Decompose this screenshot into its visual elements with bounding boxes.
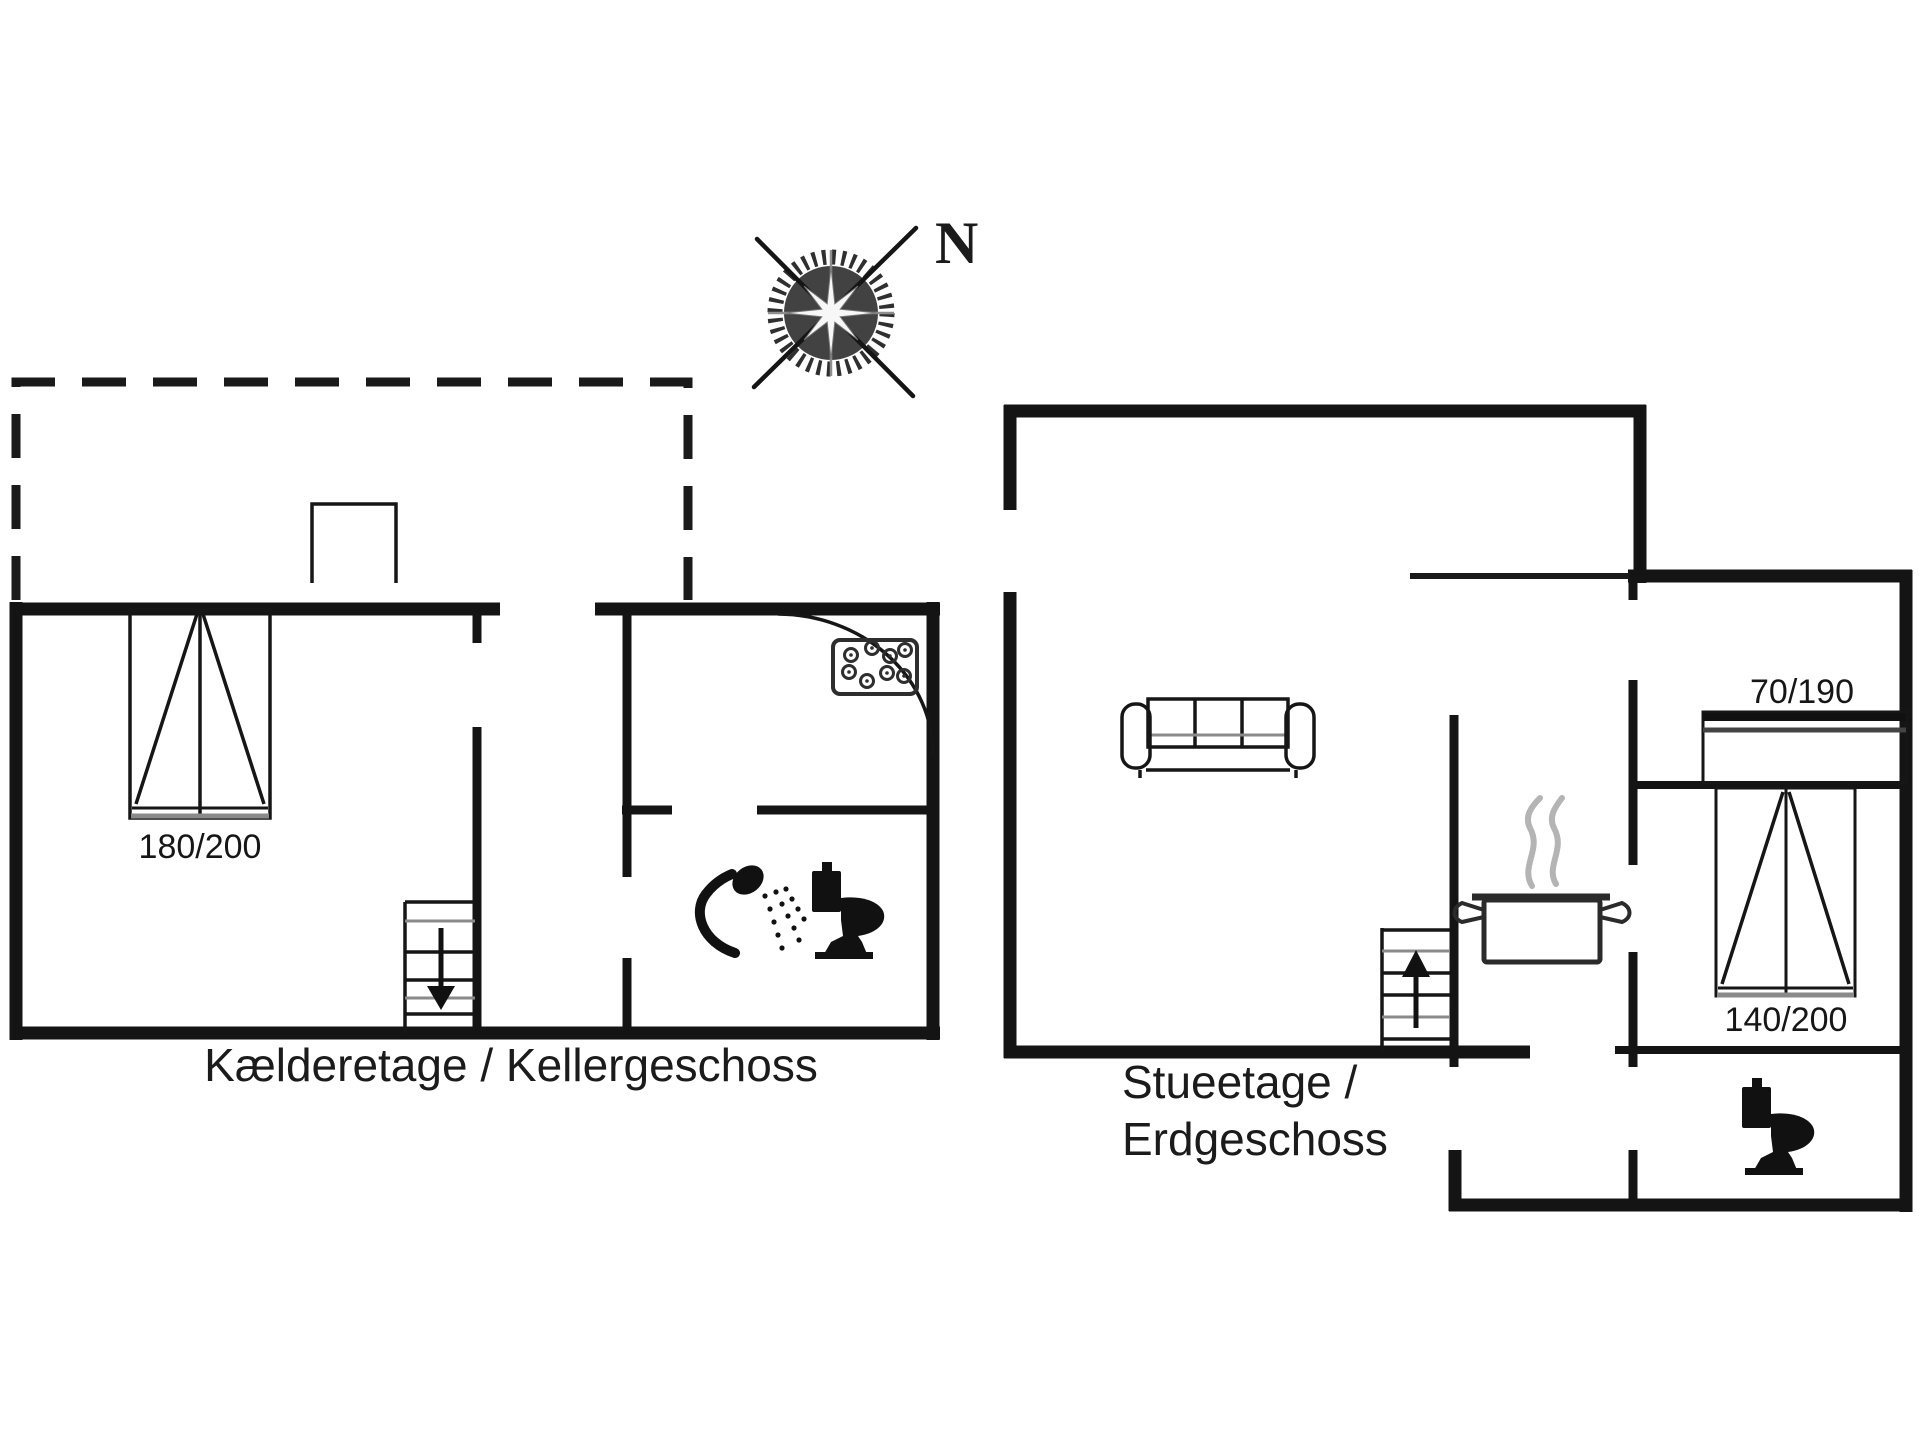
stairs-down-icon [405, 902, 475, 1033]
floor-plan-page: N 180/2 [0, 0, 1920, 1440]
north-label: N [935, 210, 978, 276]
ground-floor-interior-walls [1410, 575, 1908, 1205]
toilet-icon-ground [1742, 1078, 1814, 1175]
single-bed-symbol: 70/190 [1703, 673, 1906, 783]
dashed-outline [16, 382, 688, 600]
steam-icon [1528, 798, 1540, 886]
ground-floor-plan: 70/190 140/200 Stueetage / Erdgeschoss [1004, 405, 1912, 1212]
toilet-icon-basement [812, 862, 884, 959]
shower-tray-icon [833, 640, 917, 694]
floor-plan-canvas: N 180/2 [0, 0, 1920, 1440]
ground-floor-caption-line1: Stueetage / [1122, 1056, 1358, 1108]
double-bed-symbol-ground: 140/200 [1716, 788, 1855, 1039]
double-bed-symbol: 180/200 [130, 610, 270, 866]
niche-symbol [312, 504, 396, 583]
steam-icon [1552, 798, 1562, 884]
basement-interior-walls [477, 615, 938, 1038]
basement-caption: Kælderetage / Kellergeschoss [204, 1039, 818, 1091]
compass-rose-icon: N [754, 210, 978, 396]
basement-plan: 180/200 [10, 382, 940, 1091]
ground-floor-caption-line2: Erdgeschoss [1122, 1113, 1388, 1165]
sofa-icon [1122, 699, 1314, 778]
shower-head-icon [700, 859, 807, 953]
stairs-up-icon [1382, 928, 1450, 1052]
cooking-pot-icon [1455, 798, 1630, 962]
bed-size-label: 180/200 [139, 828, 262, 866]
bed-size-label: 140/200 [1725, 1001, 1848, 1039]
shower-corner-arc [778, 614, 933, 754]
bed-size-label: 70/190 [1750, 673, 1854, 711]
